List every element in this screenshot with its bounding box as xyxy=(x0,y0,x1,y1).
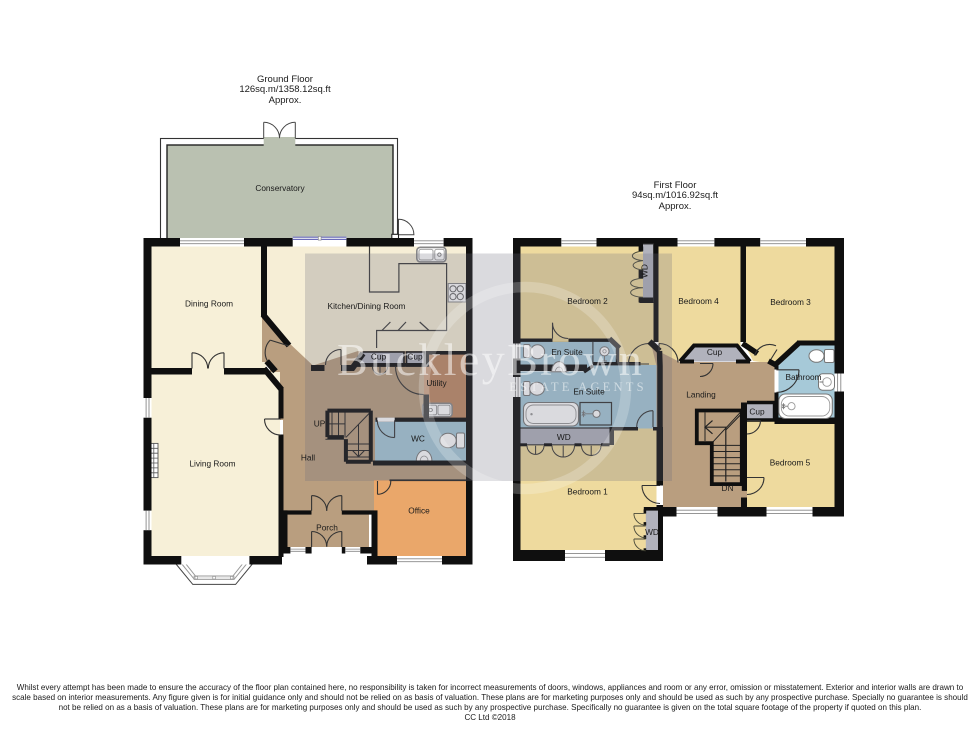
svg-text:Bedroom 4: Bedroom 4 xyxy=(678,296,719,306)
svg-text:En Suite: En Suite xyxy=(573,387,605,397)
svg-text:Cup: Cup xyxy=(407,352,423,362)
svg-text:Bedroom 1: Bedroom 1 xyxy=(567,486,608,496)
svg-text:Cup: Cup xyxy=(707,347,723,357)
svg-text:Office: Office xyxy=(408,506,430,516)
svg-text:Bedroom 2: Bedroom 2 xyxy=(567,296,608,306)
svg-text:Cup: Cup xyxy=(749,407,765,417)
svg-text:En Suite: En Suite xyxy=(551,347,583,357)
svg-text:Hall: Hall xyxy=(301,452,315,462)
svg-text:DN: DN xyxy=(722,483,734,493)
svg-text:Living Room: Living Room xyxy=(189,458,235,468)
svg-text:Bathroom: Bathroom xyxy=(786,372,822,382)
svg-text:WC: WC xyxy=(411,434,425,444)
svg-text:Dining Room: Dining Room xyxy=(185,299,233,309)
svg-text:WD: WD xyxy=(645,527,659,537)
svg-text:Kitchen/Dining Room: Kitchen/Dining Room xyxy=(328,301,406,311)
svg-text:WD: WD xyxy=(557,432,571,442)
svg-text:Porch: Porch xyxy=(316,523,338,533)
svg-text:Bedroom 3: Bedroom 3 xyxy=(770,297,811,307)
svg-text:Conservatory: Conservatory xyxy=(255,183,305,193)
svg-text:Utility: Utility xyxy=(426,378,447,388)
svg-text:Bedroom 5: Bedroom 5 xyxy=(770,458,811,468)
svg-text:Landing: Landing xyxy=(686,390,716,400)
svg-text:Cup: Cup xyxy=(371,352,387,362)
svg-text:WD: WD xyxy=(640,264,650,278)
svg-text:UP: UP xyxy=(314,419,326,429)
